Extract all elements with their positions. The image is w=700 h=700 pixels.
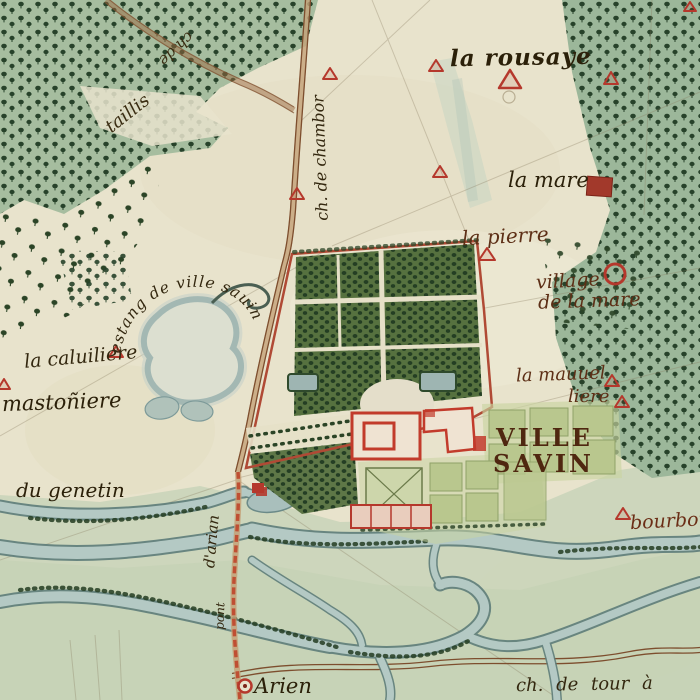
label-mauuel-line1: la mauuel (516, 364, 606, 385)
label-pont: pont (213, 599, 226, 633)
label-savin: SAVIN (493, 452, 594, 476)
manor-square-icon (586, 176, 612, 197)
label-bourbon: bourbon (630, 510, 700, 533)
label-chemin-tour: ch. de tour à (516, 675, 653, 695)
park-basin-east (420, 372, 456, 391)
historical-map-canvas: estang de ville sauin la rousaye ch. de … (0, 0, 700, 700)
label-ville: VILLE (496, 426, 593, 450)
label-village-line2: de la mare (538, 290, 641, 313)
label-la-pierre: la pierre (462, 224, 550, 249)
label-genetin: du genetin (16, 480, 125, 500)
label-mauuel-line2: liere (568, 388, 609, 406)
park-basin-west (288, 374, 318, 391)
river-farm-buildings (351, 505, 431, 528)
label-arien: Arien (254, 676, 312, 697)
arien-ring-icon (239, 680, 252, 693)
label-la-mare: la mare (508, 170, 589, 191)
label-la-rousaye: la rousaye (450, 45, 592, 70)
label-mastoniere: mastoñiere (2, 390, 122, 415)
